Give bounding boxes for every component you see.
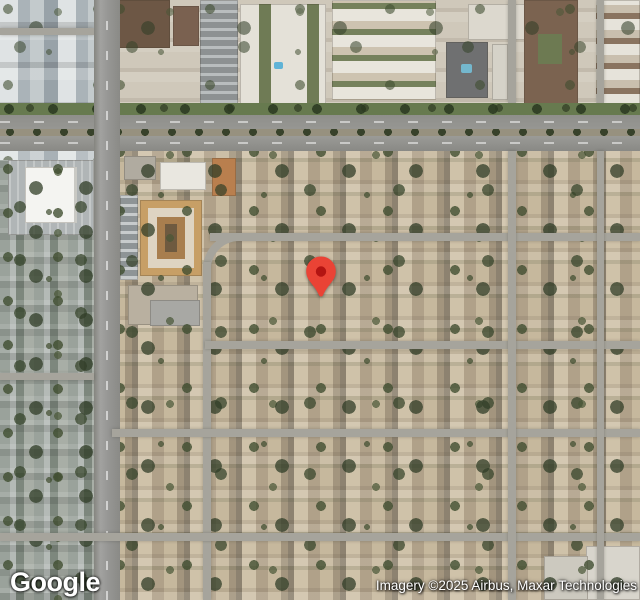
parking-lot — [200, 0, 238, 104]
street — [508, 0, 516, 103]
residential-street — [597, 151, 604, 600]
street — [0, 28, 94, 35]
residential-street — [112, 429, 640, 437]
courtyard-center — [165, 224, 177, 252]
apartment-building — [173, 6, 199, 46]
residential-street — [205, 341, 640, 349]
inner-courtyard — [157, 217, 185, 259]
apartment-building — [492, 44, 508, 100]
courtyard-lawn — [538, 34, 562, 64]
commercial-building — [150, 300, 200, 326]
commercial-building — [124, 156, 156, 180]
street — [597, 0, 604, 103]
google-logo[interactable]: Google — [10, 567, 100, 597]
map-attribution: Imagery ©2025 Airbus, Maxar Technologies — [376, 577, 637, 594]
commercial-building — [160, 162, 206, 190]
building-ring-roof — [148, 208, 194, 268]
parking-lot — [120, 195, 138, 280]
satellite-map-canvas[interactable]: Google Imagery ©2025 Airbus, Maxar Techn… — [0, 0, 640, 600]
swimming-pool — [461, 64, 472, 73]
courtyard-apartment-complex — [140, 200, 202, 276]
apartment-row-buildings — [332, 0, 436, 100]
big-box-store-roof — [25, 167, 77, 223]
residential-street — [210, 233, 640, 241]
residential-street — [508, 151, 516, 600]
pin-dot — [316, 266, 326, 276]
residential-street — [0, 533, 640, 541]
residential-street — [0, 373, 94, 380]
apartment-building — [118, 0, 170, 48]
swimming-pool — [274, 62, 283, 69]
apartment-complex-courtyard — [240, 4, 326, 104]
location-pin-icon[interactable] — [303, 255, 339, 301]
commercial-building — [212, 158, 236, 196]
major-avenue-vertical — [94, 0, 120, 600]
